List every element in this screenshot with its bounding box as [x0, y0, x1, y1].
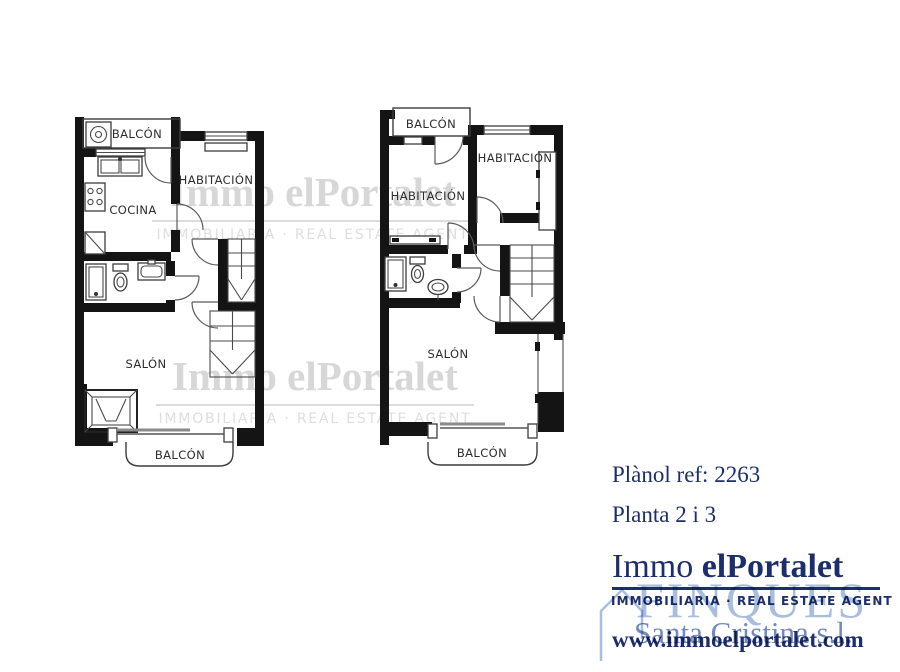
window-bench-icon [205, 143, 247, 151]
washing-machine-icon [86, 122, 111, 147]
right-balcony-bottom-label: BALCÓN [457, 445, 507, 460]
washbasin-icon [428, 280, 448, 301]
right-habitacion-left-label: HABITACIÓN [391, 188, 466, 203]
toilet-icon [113, 264, 128, 291]
right-floorplan: BALCÓN HABITACIÓN HABITACIÓN SALÓN BALCÓ… [380, 108, 565, 465]
washbasin-icon [138, 260, 165, 280]
left-balcony-bottom-label: BALCÓN [155, 447, 205, 462]
right-salon-label: SALÓN [427, 346, 468, 361]
shower-icon [86, 264, 106, 300]
sideboard-icon [390, 236, 440, 244]
plan-floor: Planta 2 i 3 [612, 502, 716, 528]
shower-icon [385, 257, 406, 291]
kitchen-sink-icon [98, 157, 142, 176]
kitchen-counter-icon [85, 232, 105, 254]
left-floorplan: BALCÓN HABITACIÓN COCINA SALÓN BALCÓN [75, 117, 264, 466]
left-balcony-top-label: BALCÓN [112, 126, 162, 141]
right-bathroom [385, 257, 448, 300]
left-cocina-label: COCINA [109, 203, 156, 217]
left-bathroom [86, 260, 165, 300]
fireplace-icon [85, 390, 137, 432]
right-balcony-top-label: BALCÓN [406, 116, 456, 131]
right-stairs-icon [510, 245, 554, 322]
right-habitacion-right-label: HABITACIÓN [478, 150, 553, 165]
left-salon-label: SALÓN [125, 356, 166, 371]
plan-ref: Plànol ref: 2263 [612, 462, 760, 488]
toilet-icon [410, 257, 425, 283]
stamp-santa-cristina: Santa Cristina s.l. [634, 615, 853, 651]
floorplan-page: Immo elPortalet IMMOBILIARIA · REAL ESTA… [0, 0, 900, 672]
left-habitacion-label: HABITACIÓN [179, 172, 254, 187]
stove-icon [85, 183, 105, 211]
